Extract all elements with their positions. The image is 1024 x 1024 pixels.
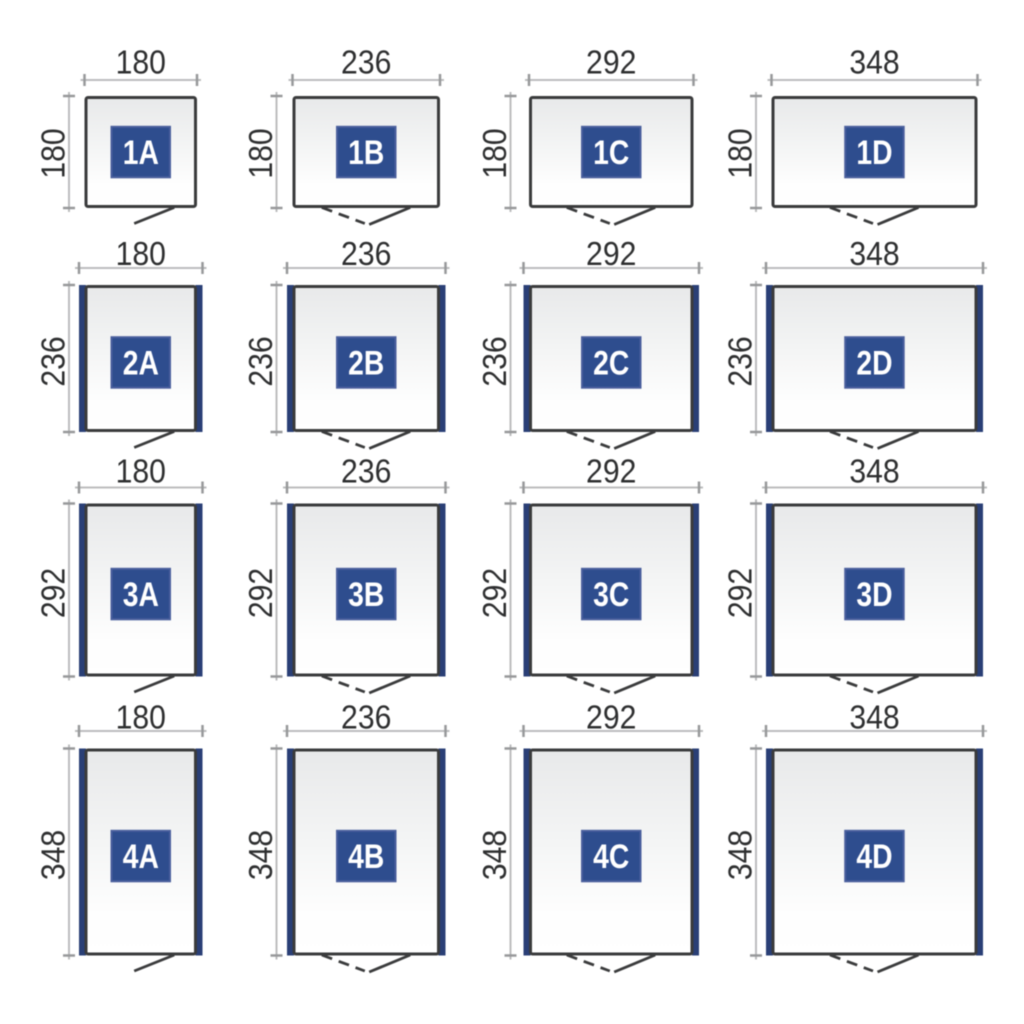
svg-text:180: 180 — [476, 128, 514, 178]
svg-text:292: 292 — [586, 452, 636, 490]
svg-text:180: 180 — [116, 235, 166, 273]
svg-text:3A: 3A — [123, 574, 159, 613]
svg-text:180: 180 — [116, 452, 166, 490]
svg-text:348: 348 — [849, 698, 899, 736]
svg-text:1D: 1D — [856, 132, 892, 171]
svg-text:236: 236 — [476, 336, 514, 386]
svg-text:180: 180 — [116, 43, 166, 81]
svg-text:292: 292 — [242, 568, 280, 618]
svg-text:348: 348 — [476, 830, 514, 880]
svg-text:3D: 3D — [856, 574, 892, 613]
svg-text:348: 348 — [849, 452, 899, 490]
svg-text:348: 348 — [34, 830, 72, 880]
svg-text:3C: 3C — [593, 574, 629, 613]
svg-text:180: 180 — [242, 128, 280, 178]
svg-text:348: 348 — [849, 43, 899, 81]
svg-text:292: 292 — [586, 235, 636, 273]
svg-text:2A: 2A — [123, 343, 159, 382]
svg-text:236: 236 — [341, 698, 391, 736]
svg-text:236: 236 — [242, 336, 280, 386]
svg-text:2C: 2C — [593, 343, 629, 382]
svg-text:1C: 1C — [593, 132, 629, 171]
svg-text:292: 292 — [34, 568, 72, 618]
svg-text:292: 292 — [476, 568, 514, 618]
svg-text:4B: 4B — [348, 836, 384, 875]
svg-text:236: 236 — [341, 43, 391, 81]
svg-text:1A: 1A — [123, 132, 159, 171]
svg-text:3B: 3B — [348, 574, 384, 613]
svg-text:180: 180 — [34, 128, 72, 178]
svg-text:236: 236 — [721, 336, 759, 386]
svg-text:348: 348 — [721, 830, 759, 880]
svg-text:4A: 4A — [123, 836, 159, 875]
svg-text:180: 180 — [721, 128, 759, 178]
svg-text:180: 180 — [116, 698, 166, 736]
svg-text:348: 348 — [849, 235, 899, 273]
svg-text:4D: 4D — [856, 836, 892, 875]
svg-text:292: 292 — [586, 43, 636, 81]
svg-text:292: 292 — [721, 568, 759, 618]
svg-text:236: 236 — [341, 235, 391, 273]
svg-text:292: 292 — [586, 698, 636, 736]
svg-text:2D: 2D — [856, 343, 892, 382]
svg-text:1B: 1B — [348, 132, 384, 171]
svg-text:236: 236 — [34, 336, 72, 386]
svg-text:4C: 4C — [593, 836, 629, 875]
svg-text:348: 348 — [242, 830, 280, 880]
svg-text:2B: 2B — [348, 343, 384, 382]
svg-text:236: 236 — [341, 452, 391, 490]
